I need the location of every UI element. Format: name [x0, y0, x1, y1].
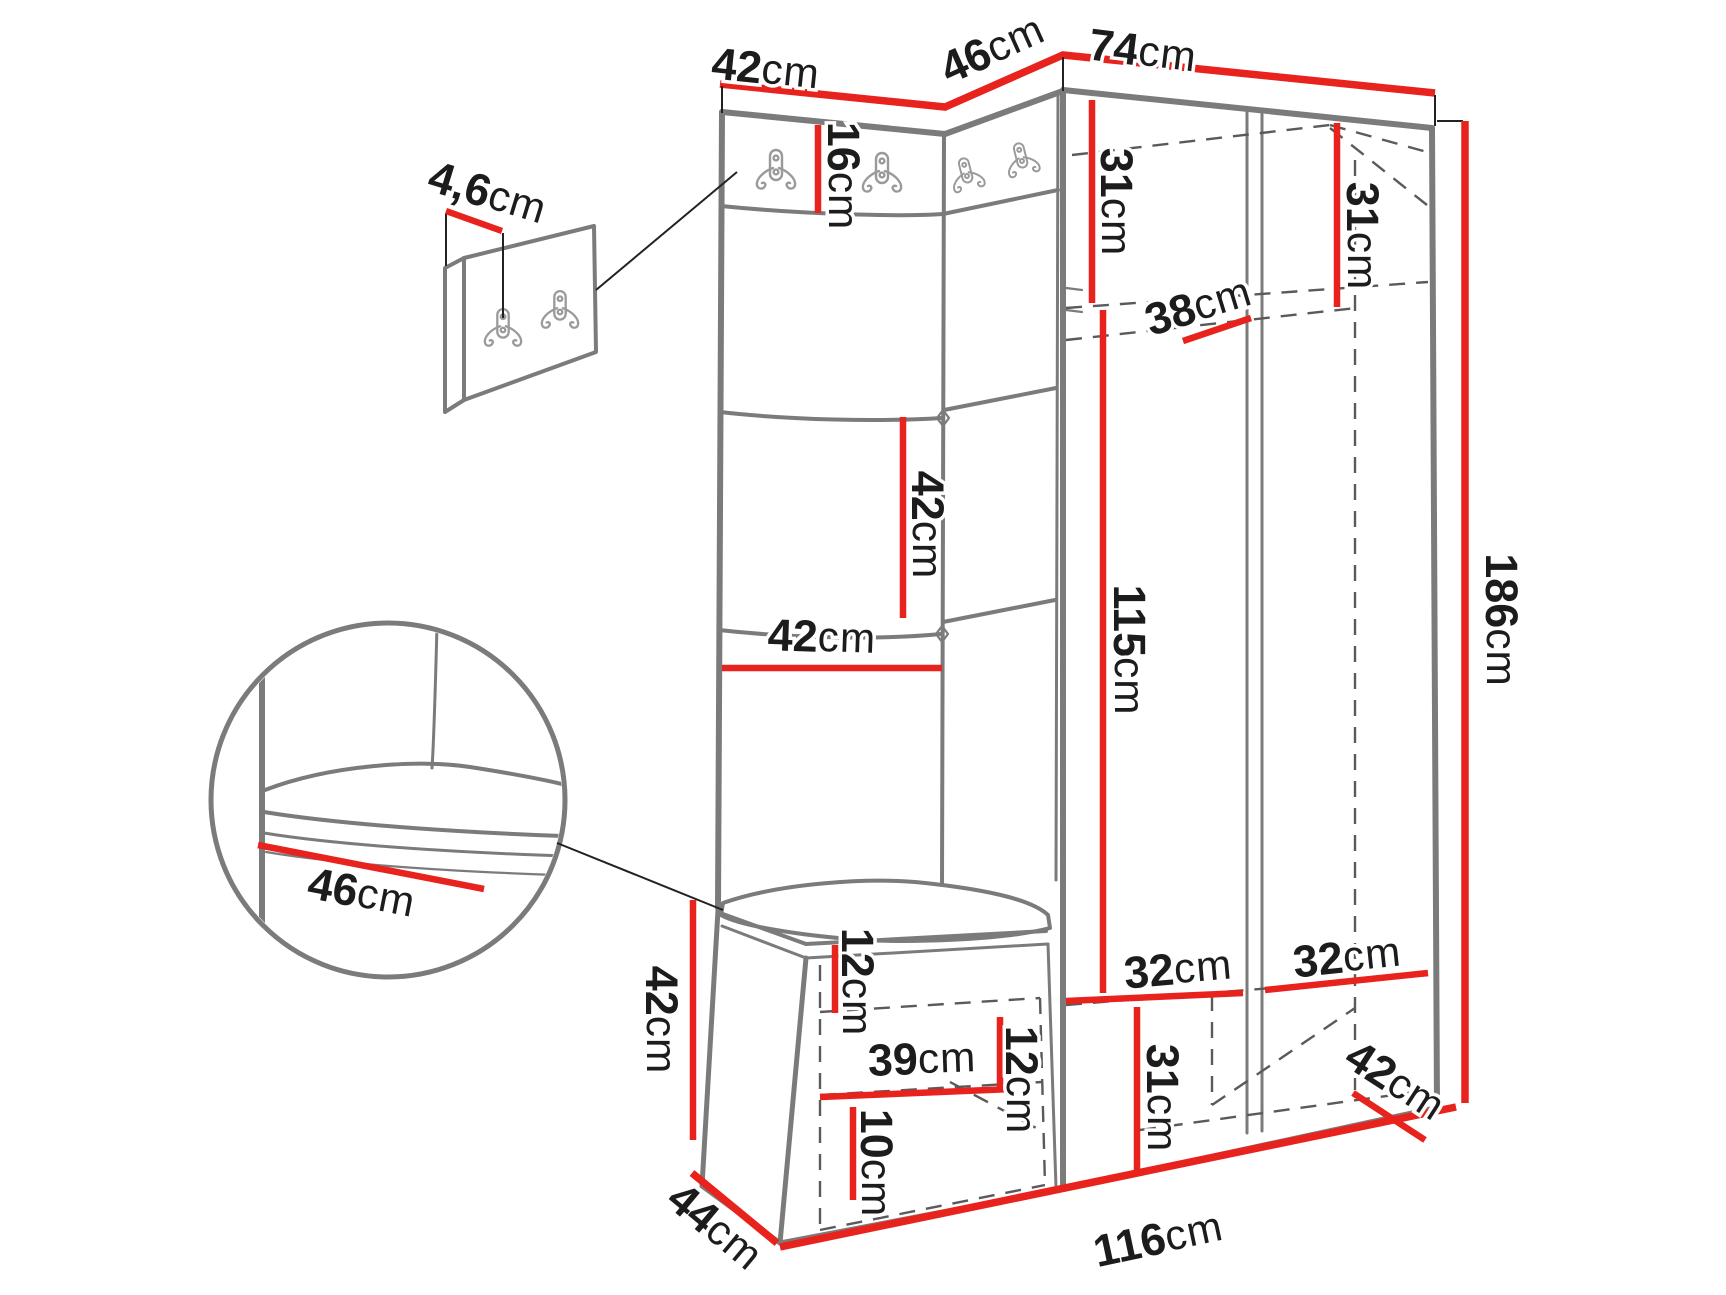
dim-corner-width: 46cm — [932, 3, 1052, 94]
roof-dimension-line — [720, 55, 1435, 107]
top-shelf-front-edge-dashed — [1330, 125, 1427, 152]
dim-open-section-height: 115cm — [1105, 585, 1156, 716]
dim-right-section-width: 74cm — [1086, 18, 1200, 82]
furniture-dimension-diagram: 42cm 46cm 74cm 4,6cm 16cm 31cm 31cm 38cm… — [0, 0, 1726, 1295]
bench-inner-width-line — [820, 1089, 1012, 1097]
bench-corner-detail — [211, 623, 723, 977]
dim-total-width: 116cm — [1089, 1199, 1228, 1276]
double-coat-hook-icon — [757, 150, 795, 189]
dim-bench-height: 42cm — [637, 966, 688, 1074]
dim-total-height: 186cm — [1477, 553, 1528, 686]
hook-strip-bottom-seam — [721, 190, 1058, 215]
dim-bench-top-offset: 12cm — [833, 928, 884, 1036]
dim-bench-shelf-offset: 12cm — [997, 1026, 1048, 1134]
bench-front-left-edge — [780, 958, 806, 1243]
circle-leader-line — [557, 843, 723, 910]
dim-right-shelf-depth: 31cm — [1338, 182, 1389, 290]
left-column-left-edge — [718, 112, 722, 908]
diagram-canvas: 42cm 46cm 74cm 4,6cm 16cm 31cm 31cm 38cm… — [0, 0, 1726, 1295]
dim-top-left-width: 42cm — [709, 37, 822, 99]
dim-bench-bottom-offset: 10cm — [852, 1109, 903, 1217]
panel-tile-seam-1 — [720, 388, 1056, 420]
main-unit-hooks — [757, 140, 1041, 193]
bottom-depth-diagonal-dashed — [1212, 1008, 1355, 1105]
hook-panel-front — [464, 226, 596, 400]
corner-face-right-edge — [1056, 95, 1058, 880]
bench-back-left-edge — [702, 910, 718, 1186]
dim-bottom-compartment-height: 31cm — [1138, 1044, 1189, 1152]
double-coat-hook-icon — [947, 155, 985, 193]
dim-panel-tile-height: 42cm — [903, 471, 954, 579]
double-coat-hook-icon — [1002, 140, 1040, 178]
dim-panel-tile-width: 42cm — [767, 609, 877, 664]
dim-hook-panel-thickness: 4,6cm — [423, 150, 554, 234]
dim-hook-strip-height: 16cm — [819, 122, 870, 230]
bench-right-edge — [1048, 944, 1056, 1188]
hook-panel-leader-line — [596, 172, 737, 290]
dim-bottom-shelf-depth-left: 32cm — [1122, 938, 1234, 998]
hook-panel-side — [445, 258, 464, 412]
cabinet-right-edge — [1432, 128, 1437, 1108]
dim-bench-inner-width: 39cm — [867, 1031, 977, 1086]
dim-left-shelf-depth: 31cm — [1092, 148, 1143, 256]
